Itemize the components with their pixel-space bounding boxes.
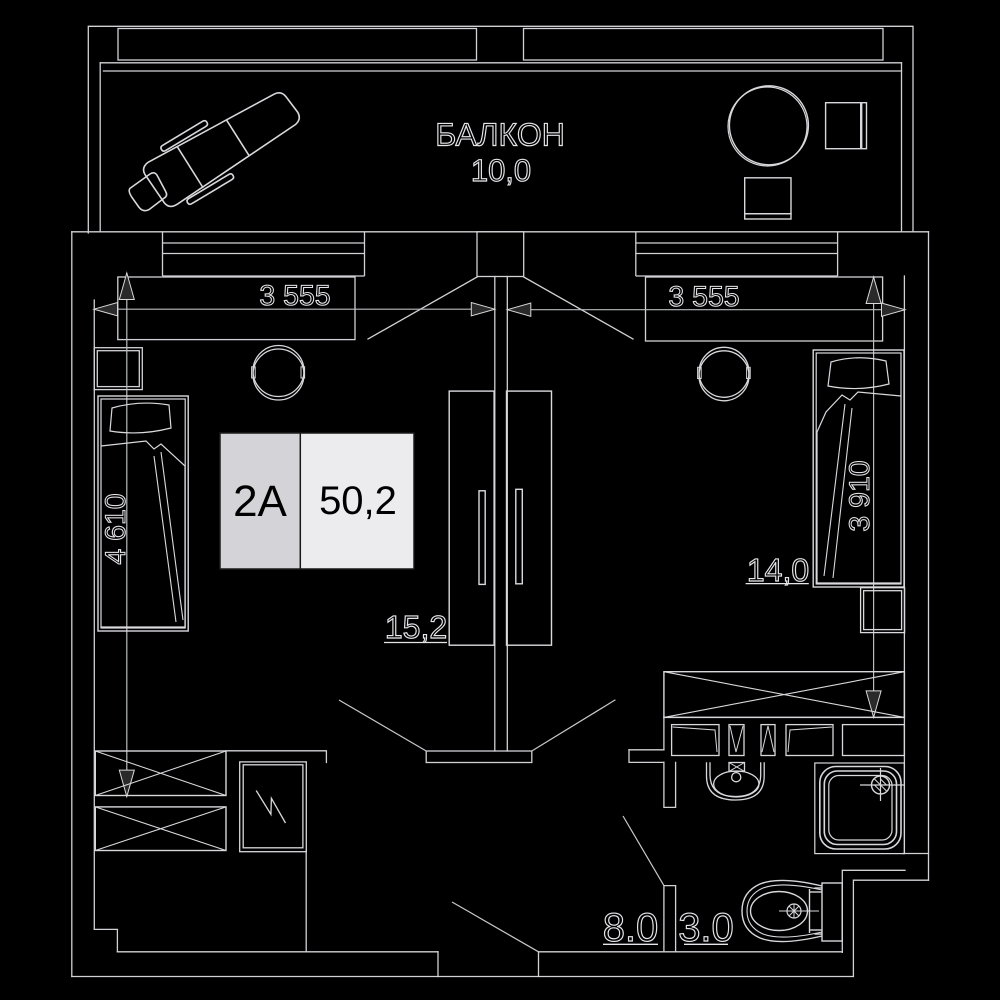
- svg-text:3 555: 3 555: [668, 281, 739, 313]
- svg-text:3.0: 3.0: [678, 906, 734, 950]
- svg-text:4 610: 4 610: [100, 493, 132, 564]
- svg-text:14,0: 14,0: [747, 552, 809, 588]
- svg-text:3 555: 3 555: [259, 280, 330, 312]
- svg-text:БАЛКОН: БАЛКОН: [435, 117, 565, 153]
- svg-text:15,2: 15,2: [385, 609, 447, 645]
- svg-text:3 910: 3 910: [844, 460, 876, 531]
- svg-text:10,0: 10,0: [471, 153, 531, 188]
- svg-text:50,2: 50,2: [319, 479, 397, 523]
- svg-text:8.0: 8.0: [603, 906, 659, 950]
- svg-text:2A: 2A: [233, 477, 287, 526]
